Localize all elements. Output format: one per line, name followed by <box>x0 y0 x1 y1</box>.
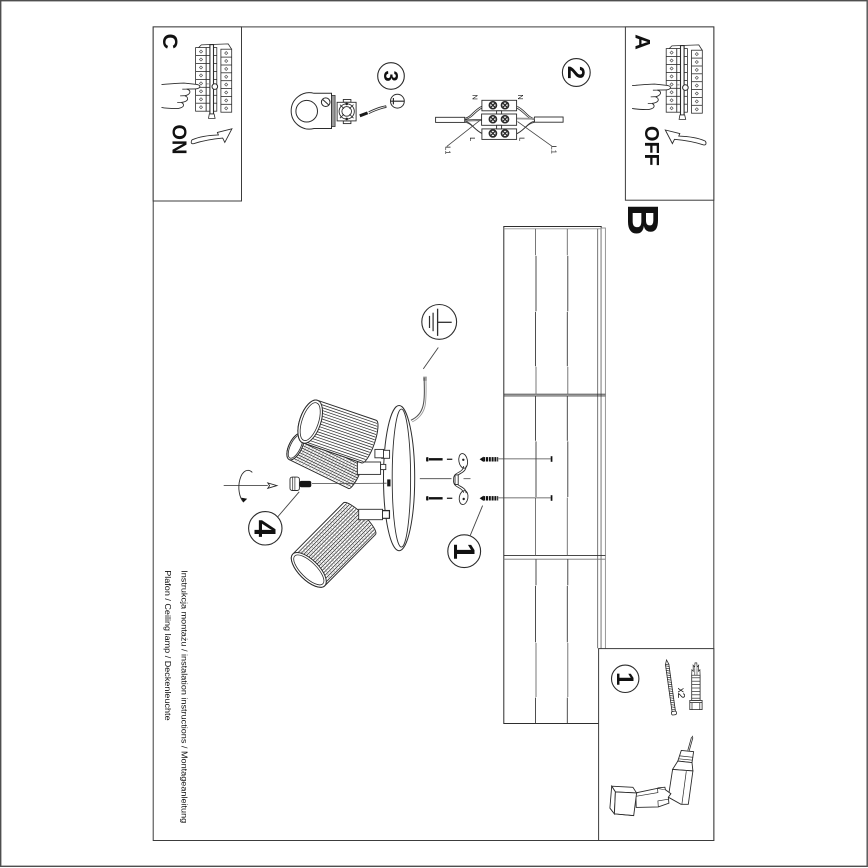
svg-text:N: N <box>516 94 525 99</box>
svg-text:2: 2 <box>562 66 589 79</box>
svg-text:OFF: OFF <box>640 126 662 166</box>
svg-text:4: 4 <box>248 520 283 538</box>
svg-text:1: 1 <box>611 672 638 685</box>
svg-text:Instrukcja montażu / instalati: Instrukcja montażu / instalation instruc… <box>180 570 190 823</box>
svg-text:Plafon / Ceiling lamp / Decken: Plafon / Ceiling lamp / Deckenleuchte <box>163 570 173 721</box>
svg-text:A: A <box>631 34 655 50</box>
svg-text:L1: L1 <box>550 146 559 154</box>
svg-text:ON: ON <box>167 124 189 154</box>
svg-text:x2: x2 <box>675 688 686 699</box>
svg-text:L: L <box>517 137 526 141</box>
svg-text:C: C <box>158 34 182 50</box>
svg-text:1: 1 <box>447 543 480 560</box>
svg-text:3: 3 <box>379 71 401 82</box>
svg-text:L1: L1 <box>444 146 453 154</box>
svg-text:B: B <box>618 204 667 236</box>
svg-text:L: L <box>468 137 477 141</box>
svg-text:N: N <box>470 95 479 100</box>
